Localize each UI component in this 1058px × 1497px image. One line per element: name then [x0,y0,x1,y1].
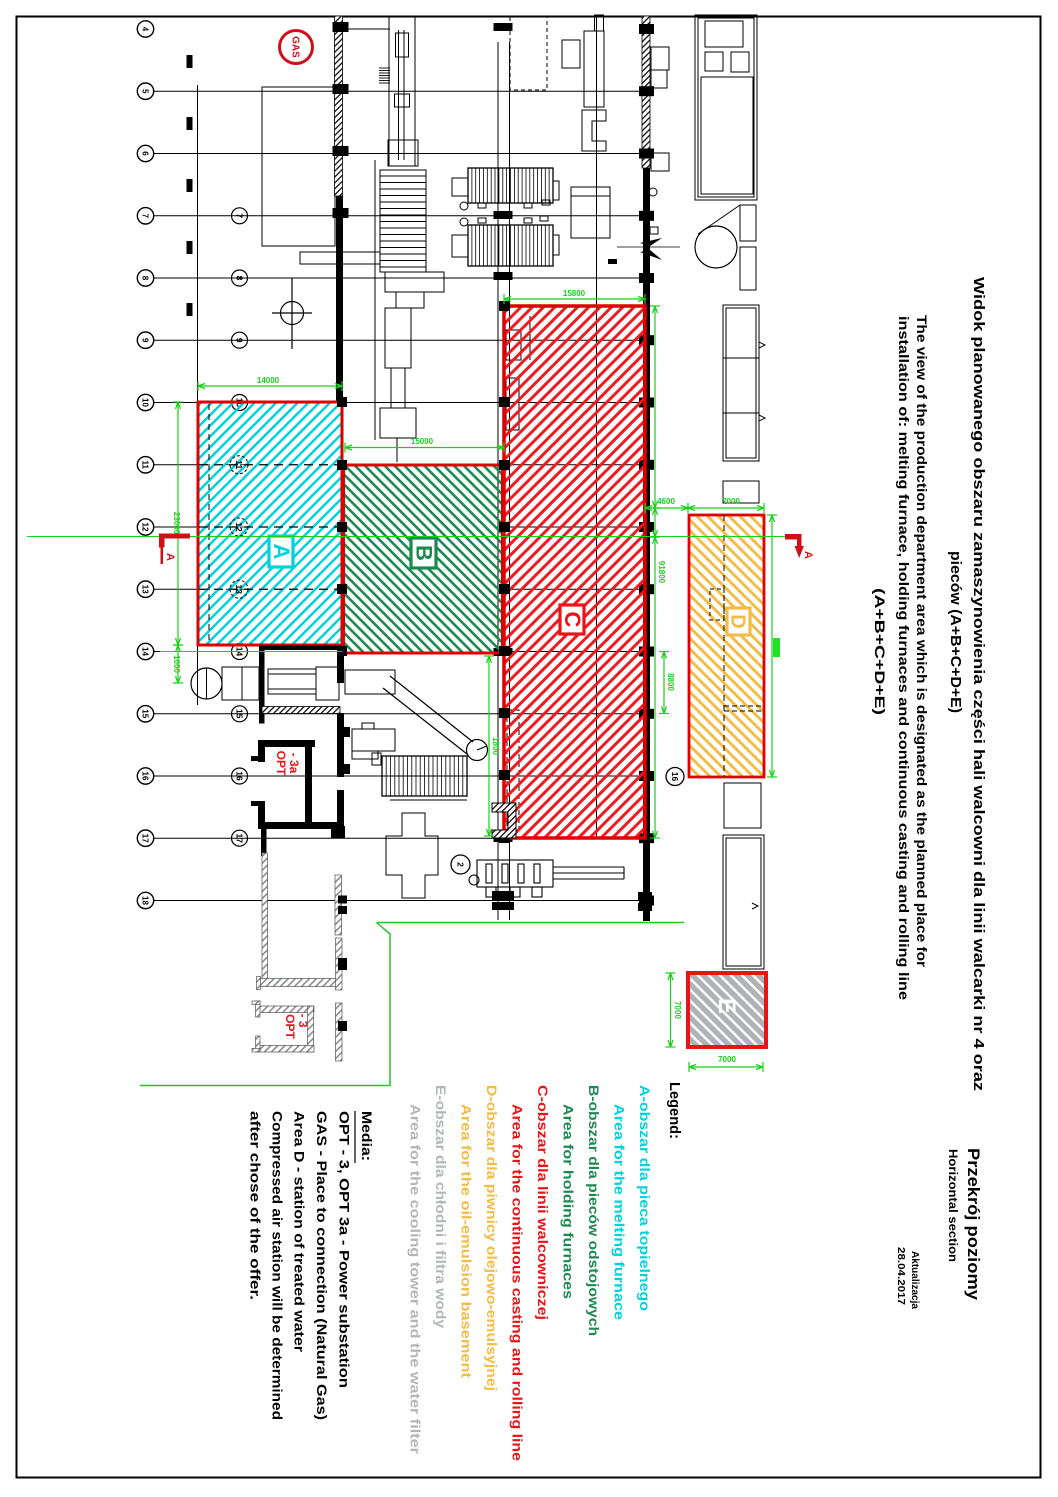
svg-text:7000: 7000 [673,1001,682,1019]
svg-text:17: 17 [140,834,149,843]
svg-text:- 3: - 3 [296,1013,310,1027]
svg-text:Przekrój poziomy: Przekrój poziomy [964,1148,983,1301]
svg-text:OPT: OPT [274,751,288,776]
svg-text:18: 18 [140,896,149,905]
svg-text:after chose of the offer.: after chose of the offer. [248,1111,264,1300]
svg-text:16: 16 [235,771,245,781]
svg-text:15: 15 [140,709,149,718]
svg-text:12: 12 [140,523,149,532]
svg-text:6: 6 [140,151,149,156]
svg-text:1800: 1800 [491,737,500,755]
svg-text:7: 7 [140,214,149,219]
svg-text:28.04.2017: 28.04.2017 [895,1247,906,1305]
svg-text:(A+B+C+D+E): (A+B+C+D+E) [872,588,888,715]
svg-text:Area for the cooling tower and: Area for the cooling tower and the water… [408,1104,424,1455]
svg-text:A: A [269,544,294,560]
svg-text:1000: 1000 [172,655,181,673]
svg-text:Widok planowanego obszaru zama: Widok planowanego obszaru zamaszynowieni… [970,277,987,1091]
svg-text:9: 9 [235,338,245,343]
svg-text:E: E [713,998,740,1014]
svg-text:OPT: OPT [283,1014,297,1039]
svg-text:Compressed air station will be: Compressed air station will be determine… [270,1111,286,1420]
svg-text:GAS - Place to connection (Nat: GAS - Place to connection (Natural Gas) [314,1111,330,1420]
svg-text:17: 17 [235,834,245,844]
svg-text:A: A [802,551,814,559]
svg-text:D: D [727,614,749,628]
svg-text:GAS: GAS [290,36,301,58]
svg-text:14000: 14000 [257,376,280,385]
svg-text:8: 8 [235,276,245,281]
svg-text:2: 2 [456,862,466,867]
svg-text:Area for the oil-emulsion base: Area for the oil-emulsion basement [459,1104,475,1378]
svg-text:8800: 8800 [666,673,675,691]
svg-text:9: 9 [140,338,149,343]
svg-text:8: 8 [140,276,149,281]
svg-text:4600: 4600 [657,497,675,506]
svg-text:Horizontal section: Horizontal section [946,1149,960,1262]
svg-text:C-obszar dla linii walcownicze: C-obszar dla linii walcowniczej [535,1085,551,1320]
svg-text:A: A [164,553,176,561]
svg-text:Area for the melting furnace: Area for the melting furnace [612,1104,628,1320]
svg-text:13: 13 [234,585,244,595]
svg-text:pieców (A+B+C+D+E): pieców (A+B+C+D+E) [947,551,964,713]
svg-text:Area for holding furnaces: Area for holding furnaces [561,1104,577,1299]
svg-text:- 3a: - 3a [287,753,301,774]
svg-text:E-obszar dla chłodni i filtra: E-obszar dla chłodni i filtra wody [433,1085,449,1328]
svg-text:13: 13 [140,585,149,594]
svg-text:The view of the production dep: The view of the production department ar… [914,315,930,968]
svg-text:91800: 91800 [657,561,666,584]
svg-text:16: 16 [140,772,149,781]
svg-text:11: 11 [234,460,244,469]
svg-text:Area D - station of treated wa: Area D - station of treated water [292,1111,308,1353]
svg-text:installation of: melting furna: installation of: melting furnace, holdin… [896,316,912,1000]
svg-text:7: 7 [234,213,244,218]
svg-text:C: C [560,612,585,628]
svg-text:B-obszar dla pieców odstojowyc: B-obszar dla pieców odstojowych [586,1085,602,1336]
svg-text:D-obszar dla piwnicy olejowo-e: D-obszar dla piwnicy olejowo-emulsyjnej [484,1085,500,1391]
svg-text:14: 14 [140,647,149,656]
svg-text:Aktualizacja: Aktualizacja [909,1251,920,1309]
svg-text:7000: 7000 [718,1055,736,1064]
svg-text:Media:: Media: [359,1111,375,1161]
svg-text:Area for the continuous castin: Area for the continuous casting and roll… [510,1104,526,1461]
svg-text:15: 15 [234,709,244,719]
svg-text:4: 4 [140,27,149,32]
svg-text:23000: 23000 [172,512,181,535]
svg-text:OPT - 3, OPT 3a - Power substa: OPT - 3, OPT 3a - Power substation [337,1111,353,1388]
svg-text:12: 12 [234,522,244,532]
svg-text:B: B [412,545,437,561]
svg-text:Legend:: Legend: [666,1082,683,1139]
svg-text:7000: 7000 [722,497,740,506]
svg-text:A-obszar dla pieca topielnego: A-obszar dla pieca topielnego [637,1085,653,1311]
svg-text:5: 5 [140,89,149,94]
svg-text:16: 16 [670,772,680,782]
svg-text:15000: 15000 [411,437,434,446]
svg-text:10: 10 [140,398,149,407]
svg-text:15800: 15800 [563,289,586,298]
svg-text:11: 11 [140,461,149,470]
